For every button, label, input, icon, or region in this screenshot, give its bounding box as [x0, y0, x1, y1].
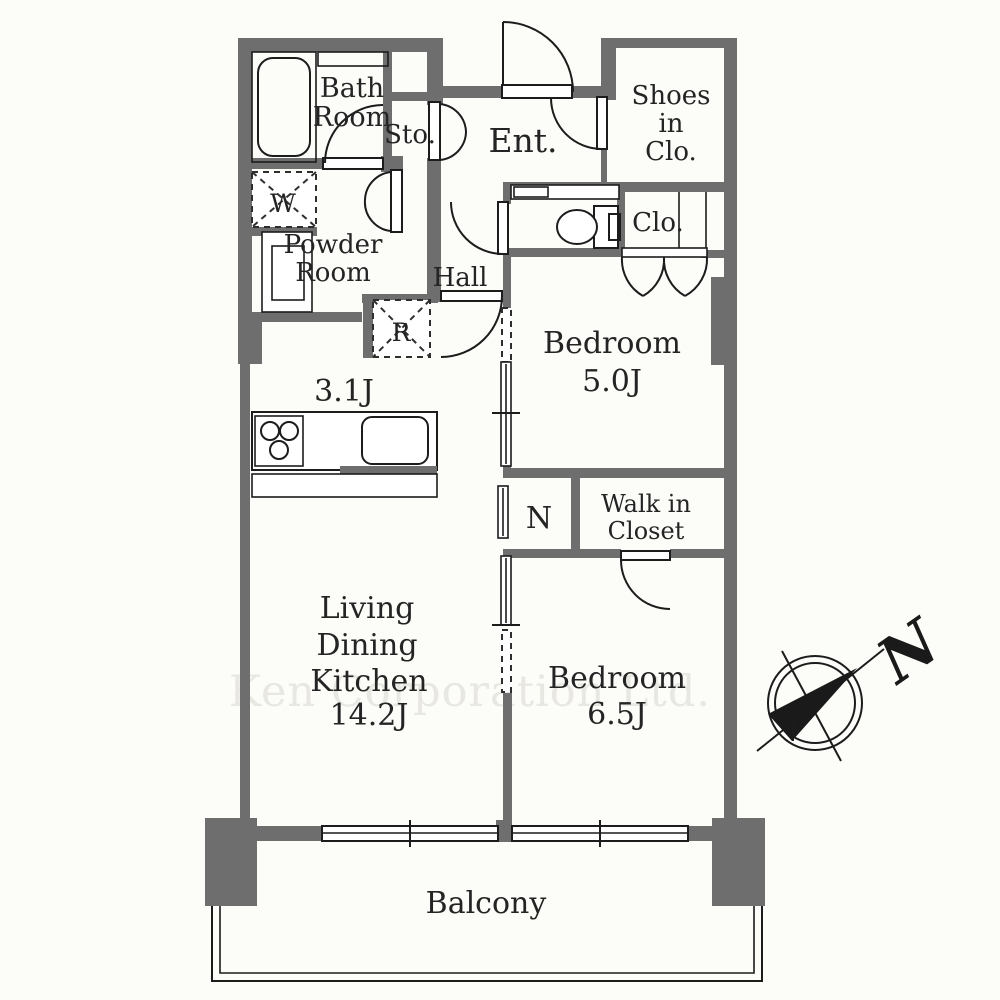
wall-segment — [238, 38, 443, 52]
balcony-label: Balcony — [426, 886, 547, 921]
bath-counter — [318, 52, 388, 66]
wic-door-leaf — [621, 551, 670, 560]
wall-segment — [363, 294, 373, 358]
walls — [205, 38, 765, 906]
bath-door-leaf — [323, 158, 383, 169]
wall-segment — [205, 818, 257, 906]
powder-room-label: Room — [295, 258, 371, 288]
hall-door-arc — [441, 296, 502, 357]
powder-room-label: Powder — [284, 230, 383, 260]
wall-segment — [503, 549, 621, 558]
shoes-door-leaf — [597, 97, 607, 149]
wall-segment — [670, 549, 737, 558]
entrance-door-arc — [503, 22, 573, 92]
walk-in-closet-label: Closet — [608, 517, 685, 545]
compass-north-label: N — [863, 604, 955, 699]
closet-fold-arc — [664, 257, 685, 296]
bath-room-label: Room — [313, 102, 391, 133]
wall-segment — [248, 158, 325, 169]
counter-wall-bar — [340, 466, 437, 474]
bathtub — [258, 58, 310, 156]
wall-segment — [437, 86, 502, 98]
closet-fold-arc — [622, 257, 643, 296]
wall-segment — [238, 38, 252, 323]
closet-fold-arc — [685, 257, 707, 296]
wall-segment — [238, 312, 262, 364]
bedroom2-label: Bedroom — [548, 661, 686, 696]
entrance-door-leaf — [502, 85, 572, 98]
wall-segment — [503, 248, 623, 257]
shoes-closet-label: Clo. — [645, 137, 697, 167]
wall-segment — [250, 826, 324, 841]
wall-segment — [503, 693, 512, 828]
bedroom1-label: Bedroom — [543, 326, 681, 361]
door-pocket — [502, 630, 511, 692]
ldk-label: Living — [320, 591, 415, 626]
shoes-door-arc — [551, 98, 602, 149]
wall-segment — [503, 251, 511, 310]
closet-door-strip — [622, 248, 707, 257]
niche-label: N — [526, 501, 552, 536]
storage-door-arc — [440, 104, 466, 132]
toilet-door-arc — [451, 202, 503, 254]
bedroom2-size: 6.5J — [587, 697, 647, 732]
walk-in-closet-label: Walk in — [601, 490, 691, 518]
refrigerator-label: R — [392, 318, 412, 347]
toilet-door-leaf — [498, 202, 508, 254]
floor-plan: Ken Corporation Ltd. — [0, 0, 1000, 1000]
entrance-door — [502, 22, 573, 98]
toilet-room — [451, 185, 620, 254]
ldk-size: 14.2J — [330, 698, 409, 733]
wall-segment — [711, 277, 728, 365]
wall-segment — [240, 360, 250, 826]
bath-room-label: Bath — [320, 73, 384, 104]
powder-door-arc — [365, 200, 391, 231]
counter-front — [252, 474, 437, 497]
bathtub-surround — [252, 52, 316, 162]
hall-ldk-door — [441, 291, 502, 357]
compass: N — [757, 604, 954, 761]
door-pocket — [502, 308, 511, 362]
ldk-label: Dining — [316, 628, 417, 663]
bedroom1-sliding-door — [492, 308, 520, 466]
entrance-label: Ent. — [488, 121, 557, 160]
bedroom1-size: 5.0J — [582, 364, 642, 399]
shoes-closet-door — [551, 97, 607, 149]
wall-segment — [712, 818, 765, 906]
storage-label: Sto. — [384, 120, 436, 150]
washer-label: W — [270, 189, 296, 218]
hall-label: Hall — [433, 263, 488, 293]
kitchen-counter — [252, 412, 437, 497]
wall-segment — [571, 478, 580, 551]
toilet-window-box — [514, 187, 548, 197]
storage-door-arc — [440, 132, 466, 160]
wall-segment — [503, 468, 737, 478]
wall-segment — [724, 558, 737, 822]
closet-fold-arc — [643, 257, 664, 296]
toilet-bowl — [557, 210, 597, 244]
powder-door-leaf — [391, 170, 402, 232]
wic-door-arc — [621, 560, 670, 609]
closet-label: Clo. — [632, 208, 684, 238]
powder-door-arc — [365, 172, 391, 200]
ldk-label: Kitchen — [310, 664, 427, 699]
shoes-closet-label: in — [658, 109, 683, 139]
wall-segment — [601, 38, 737, 48]
wall-segment — [601, 146, 607, 184]
kitchen-size-label: 3.1J — [314, 374, 374, 409]
shoes-closet-label: Shoes — [632, 81, 711, 111]
